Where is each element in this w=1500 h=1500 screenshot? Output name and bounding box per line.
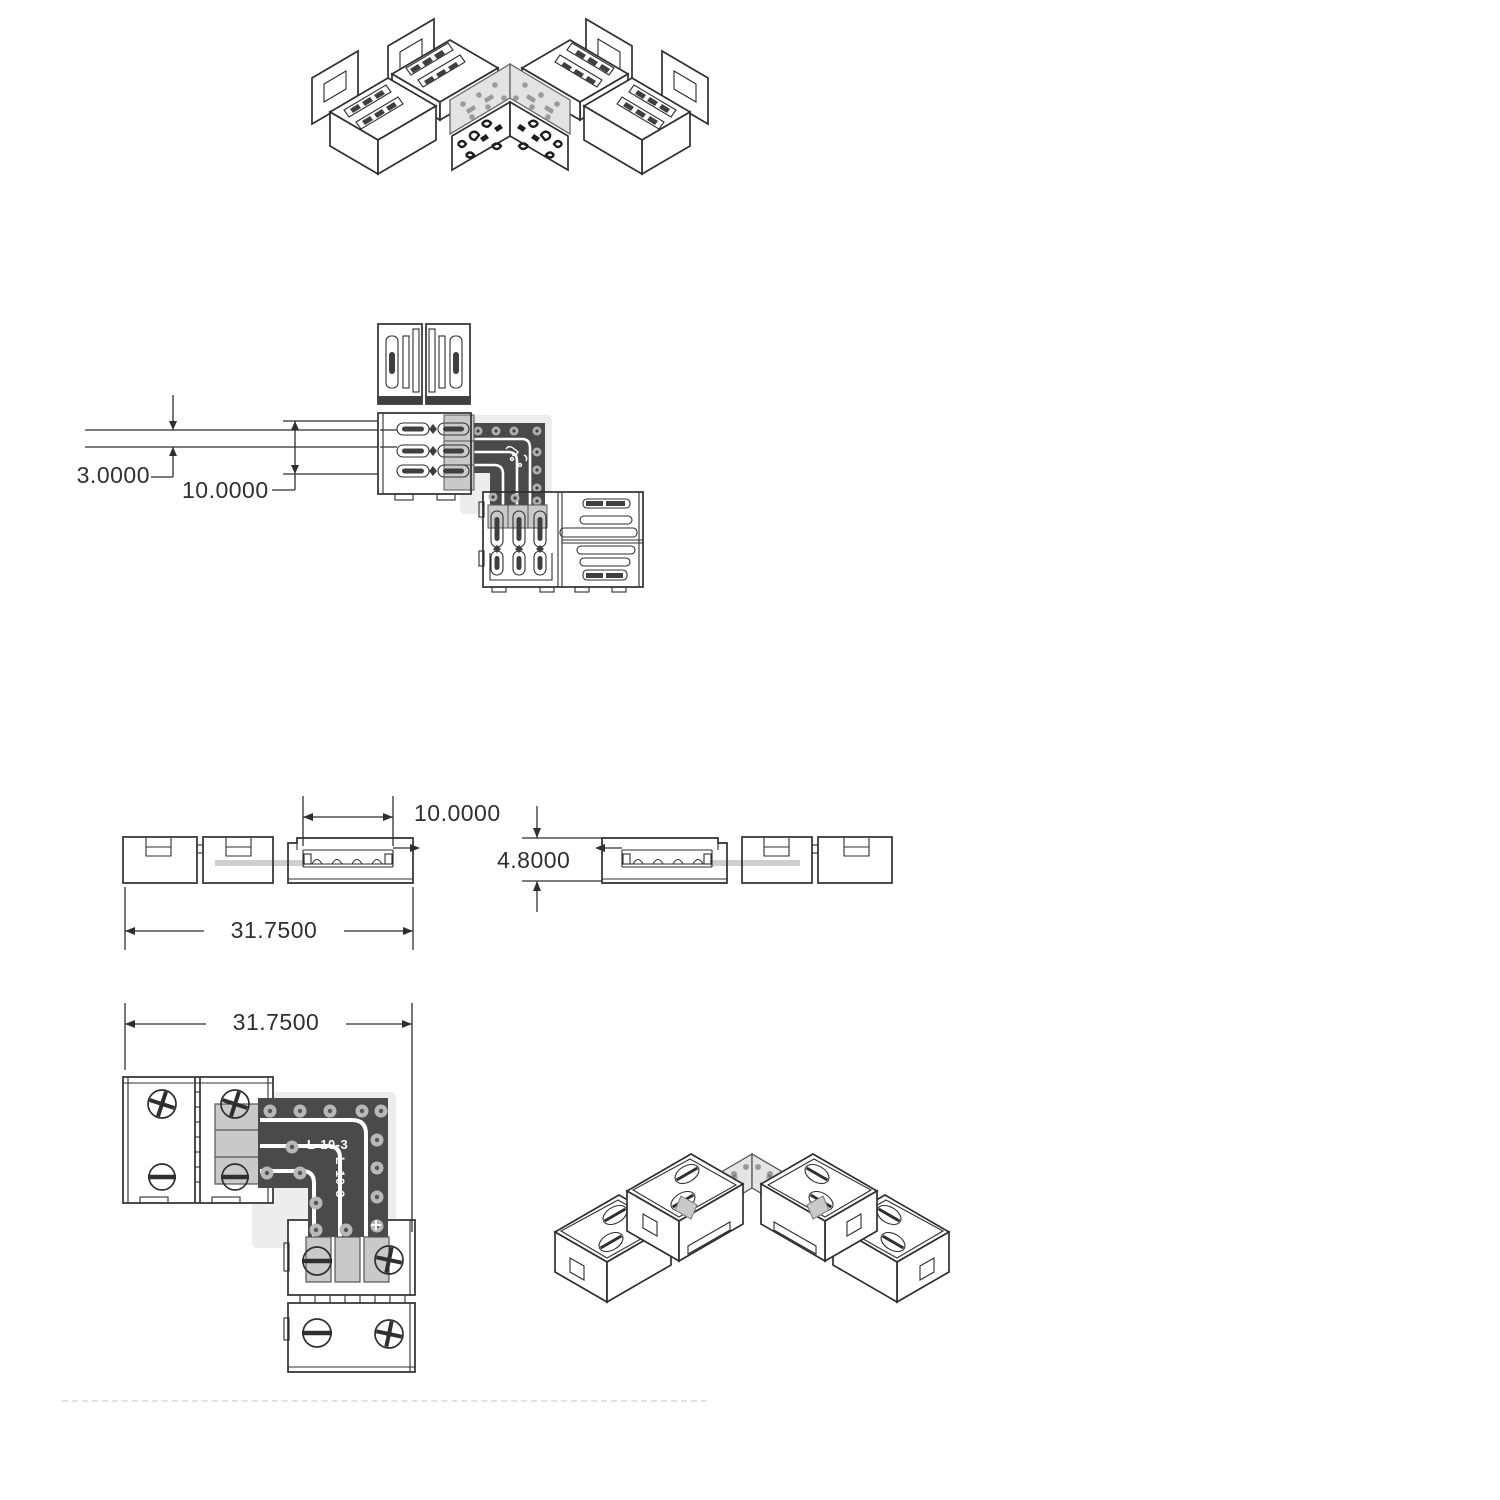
pin-slots [397, 423, 469, 477]
led-strip-ghost [215, 860, 305, 866]
iso-exploded-half-mirrored [510, 19, 708, 174]
dim-label-strip-thickness: 3.0000 [48, 464, 150, 487]
led-tray [303, 850, 393, 867]
assembled-isometric-view [500, 1080, 1000, 1380]
contact-pads [215, 1104, 260, 1184]
pcb-marking-horizontal: L-10-3 [307, 1138, 348, 1151]
iso-assembled-half-mirrored [752, 1154, 949, 1302]
clip-box [123, 837, 197, 883]
technical-drawing-sheet: 3.0000 10.0000 10.0000 31.7500 4.8000 31… [0, 0, 1500, 1500]
connection-plan-detail-view [40, 310, 660, 610]
exploded-isometric-view [300, 15, 720, 190]
pcb-marking-vertical: L-10-3 [334, 1157, 346, 1198]
dim-label-strip-width: 10.0000 [182, 479, 294, 502]
iso-assembled-half [555, 1154, 752, 1302]
faint-dashed-rule [62, 1400, 707, 1402]
dim-label-height: 4.8000 [497, 849, 577, 872]
assembled-plan-view [110, 995, 430, 1385]
dim-label-overall-length-side: 31.7500 [204, 919, 344, 942]
connector-body [288, 838, 413, 883]
iso-exploded-half [312, 19, 510, 174]
dim-label-overall-length-plan: 31.7500 [206, 1011, 346, 1034]
dim-label-opening-width: 10.0000 [414, 802, 524, 825]
side-assembly [123, 837, 420, 883]
side-assembly-mirrored [595, 837, 892, 883]
